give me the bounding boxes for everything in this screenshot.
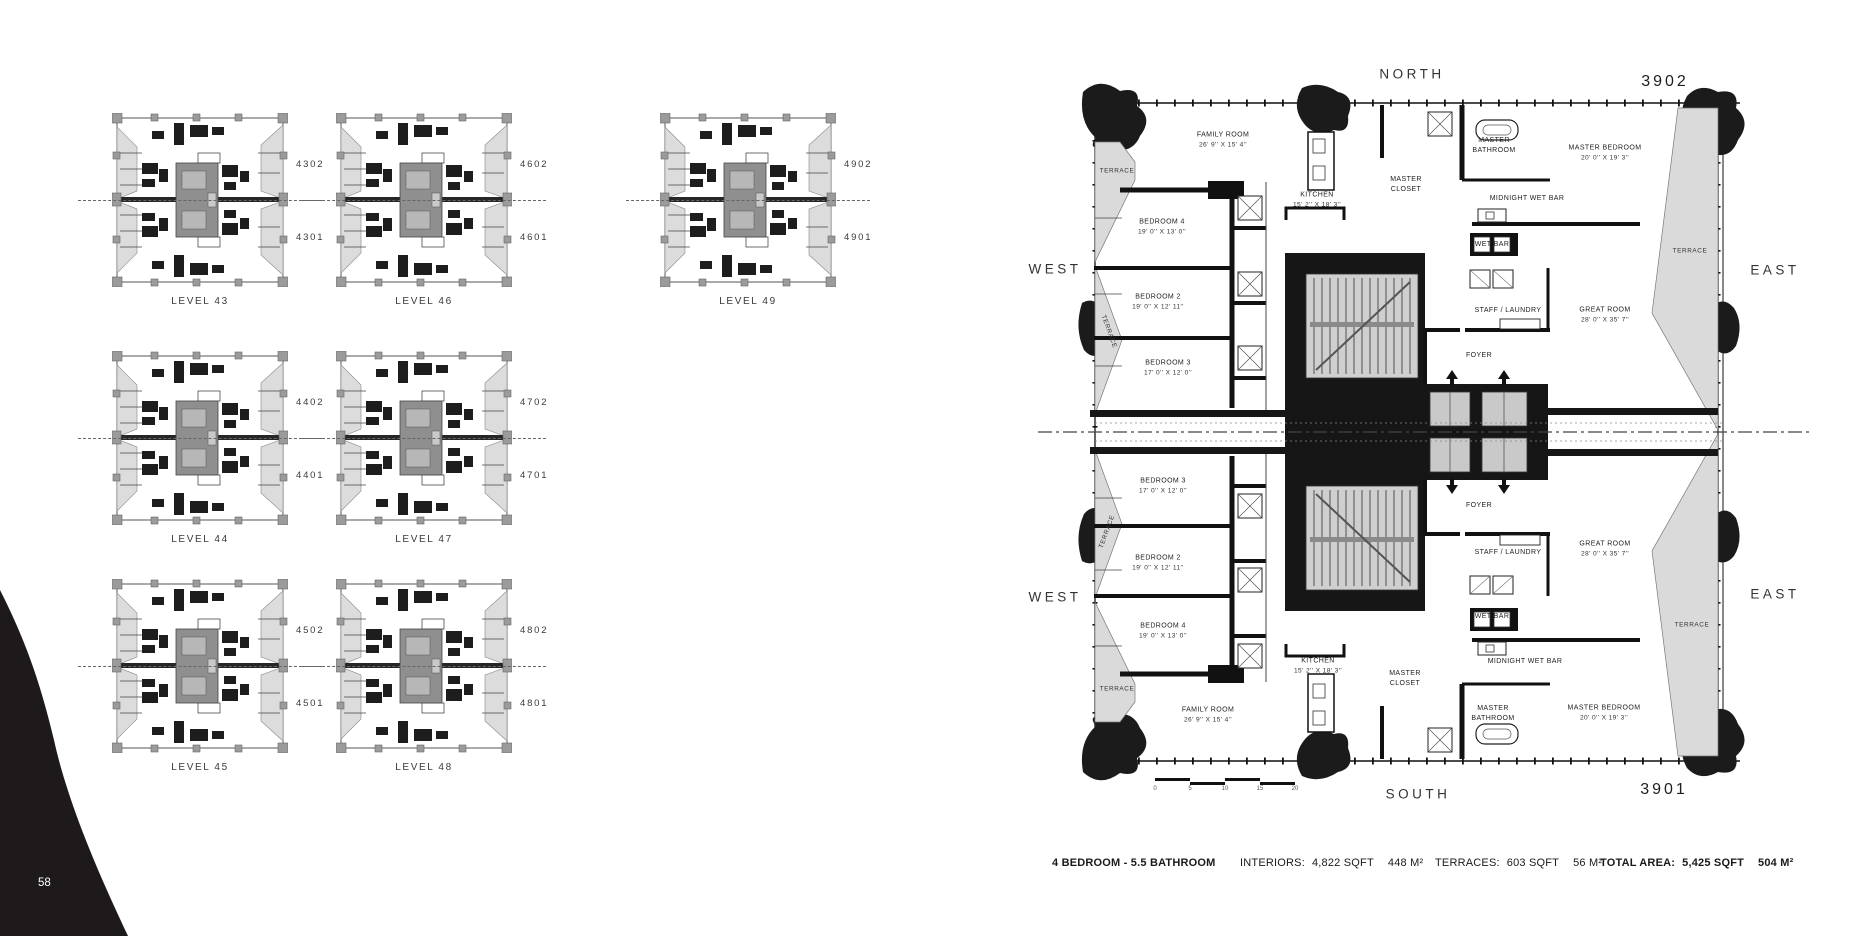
room-name: BEDROOM 3 [1144,358,1192,368]
unit-number-north: 3902 [1641,73,1689,91]
room-label-bedroom-4: BEDROOM 4 19' 0'' X 13' 0'' [1139,621,1187,640]
room-label-great-room: GREAT ROOM 28' 0'' X 35' 7'' [1579,539,1630,558]
room-name: GREAT ROOM [1579,305,1630,315]
match-line [302,666,546,667]
interiors-sqft: 4,822 SQFT [1312,857,1374,869]
unit-number: 4701 [520,470,548,481]
unit-number: 4501 [296,698,324,709]
scale-tick: 20 [1292,786,1299,792]
room-label-midnight-wet-bar: MIDNIGHT WET BAR [1488,657,1563,667]
room-dims: 19' 0'' X 13' 0'' [1139,631,1187,640]
compass-west-lower: WEST [1029,590,1082,605]
room-label-family-room: FAMILY ROOM 26' 9'' X 15' 4'' [1197,130,1249,149]
room-label-foyer: FOYER [1466,501,1492,511]
interiors-label: INTERIORS: [1240,857,1305,869]
room-dims: 20' 0'' X 19' 3'' [1569,153,1642,162]
room-label-master-bedroom: MASTER BEDROOM 20' 0'' X 19' 3'' [1568,703,1641,722]
terrace-label-east-upper: TERRACE [1673,248,1708,257]
room-label-wet-bar: WET BAR [1475,240,1510,250]
room-label-foyer: FOYER [1466,351,1492,361]
scale-tick: 5 [1188,786,1191,792]
room-label-kitchen: KITCHEN 15' 2'' X 18' 3'' [1294,656,1342,675]
compass-west-upper: WEST [1029,262,1082,277]
terraces-sqft: 603 SQFT [1507,857,1559,869]
level-label: LEVEL 43 [112,296,288,307]
corner-swoosh-graphic [0,560,140,936]
room-label-staff-laundry: STAFF / LAUNDRY [1475,306,1542,316]
room-label-wet-bar: WET BAR [1475,612,1510,622]
room-label-bedroom-2: BEDROOM 2 19' 0'' X 12' 11'' [1132,553,1184,572]
unit-number: 4602 [520,159,548,170]
room-name: BEDROOM 2 [1132,292,1184,302]
room-label-master-closet: MASTER CLOSET [1378,175,1434,195]
room-dims: 28' 0'' X 35' 7'' [1579,549,1630,558]
page-number: 58 [38,877,51,889]
room-dims: 19' 0'' X 12' 11'' [1132,302,1184,311]
room-name: BEDROOM 4 [1139,621,1187,631]
terraces-spec: TERRACES:603 SQFT56 M² [1435,857,1602,869]
scale-tick: 15 [1257,786,1264,792]
compass-east-lower: EAST [1750,587,1799,602]
compass-east-upper: EAST [1750,263,1799,278]
room-name: FAMILY ROOM [1197,130,1249,140]
room-dims: 28' 0'' X 35' 7'' [1579,315,1630,324]
unit-number: 4702 [520,397,548,408]
room-label-kitchen: KITCHEN 15' 2'' X 18' 3'' [1293,190,1341,209]
room-dims: 17' 0'' X 12' 0'' [1139,486,1187,495]
unit-number-south: 3901 [1640,781,1688,799]
room-name: FAMILY ROOM [1182,705,1234,715]
room-name: MASTER BEDROOM [1569,143,1642,153]
level-label: LEVEL 48 [336,762,512,773]
terrace-label-west-lower: TERRACE [1100,686,1135,695]
room-name: BEDROOM 3 [1139,476,1187,486]
room-name: GREAT ROOM [1579,539,1630,549]
interiors-m2: 448 M² [1388,857,1423,869]
room-dims: 26' 9'' X 15' 4'' [1182,715,1234,724]
room-label-great-room: GREAT ROOM 28' 0'' X 35' 7'' [1579,305,1630,324]
scale-tick: 0 [1153,786,1156,792]
match-line [302,200,546,201]
room-label-family-room: FAMILY ROOM 26' 9'' X 15' 4'' [1182,705,1234,724]
terrace-label-east-lower: TERRACE [1675,622,1710,631]
compass-south: SOUTH [1386,787,1451,802]
room-dims: 19' 0'' X 13' 0'' [1138,227,1186,236]
total-sqft: 5,425 SQFT [1682,857,1744,869]
room-dims: 17' 0'' X 12' 0'' [1144,368,1192,377]
unit-number: 4502 [296,625,324,636]
level-label: LEVEL 47 [336,534,512,545]
room-label-master-closet: MASTER CLOSET [1377,669,1433,689]
room-label-bedroom-3: BEDROOM 3 17' 0'' X 12' 0'' [1139,476,1187,495]
room-label-staff-laundry: STAFF / LAUNDRY [1475,548,1542,558]
unit-number: 4402 [296,397,324,408]
terrace-label-west-upper: TERRACE [1100,168,1135,177]
room-label-master-bathroom: MASTER BATHROOM [1465,704,1521,724]
room-label-bedroom-2: BEDROOM 2 19' 0'' X 12' 11'' [1132,292,1184,311]
unit-number: 4802 [520,625,548,636]
room-name: MASTER BEDROOM [1568,703,1641,713]
terraces-label: TERRACES: [1435,857,1500,869]
unit-number: 4902 [844,159,872,170]
match-line [302,438,546,439]
room-label-master-bathroom: MASTER BATHROOM [1466,136,1522,156]
room-label-bedroom-3: BEDROOM 3 17' 0'' X 12' 0'' [1144,358,1192,377]
total-m2: 504 M² [1758,857,1793,869]
unit-number: 4601 [520,232,548,243]
unit-number: 4901 [844,232,872,243]
match-line [78,200,322,201]
compass-north: NORTH [1379,67,1444,82]
main-floorplan: NORTH SOUTH WEST WEST EAST EAST 3902 390… [1080,78,1770,788]
match-line [78,438,322,439]
room-dims: 19' 0'' X 12' 11'' [1132,563,1184,572]
unit-number: 4801 [520,698,548,709]
unit-number: 4302 [296,159,324,170]
unit-number: 4301 [296,232,324,243]
level-label: LEVEL 49 [660,296,836,307]
room-label-midnight-wet-bar: MIDNIGHT WET BAR [1490,194,1565,204]
total-label: TOTAL AREA: [1600,857,1675,869]
match-line [626,200,870,201]
total-area-spec: TOTAL AREA:5,425 SQFT504 M² [1600,857,1793,869]
room-dims: 26' 9'' X 15' 4'' [1197,140,1249,149]
room-dims: 15' 2'' X 18' 3'' [1293,200,1341,209]
interiors-spec: INTERIORS:4,822 SQFT448 M² [1240,857,1423,869]
level-label: LEVEL 46 [336,296,512,307]
level-label: LEVEL 44 [112,534,288,545]
room-name: KITCHEN [1293,190,1341,200]
room-name: BEDROOM 2 [1132,553,1184,563]
room-dims: 15' 2'' X 18' 3'' [1294,666,1342,675]
scale-tick: 10 [1222,786,1229,792]
room-dims: 20' 0'' X 19' 3'' [1568,713,1641,722]
room-label-bedroom-4: BEDROOM 4 19' 0'' X 13' 0'' [1138,217,1186,236]
room-label-master-bedroom: MASTER BEDROOM 20' 0'' X 19' 3'' [1569,143,1642,162]
unit-number: 4401 [296,470,324,481]
terraces-m2: 56 M² [1573,857,1602,869]
unit-configuration: 4 BEDROOM - 5.5 BATHROOM [1052,857,1216,869]
room-name: BEDROOM 4 [1138,217,1186,227]
room-name: KITCHEN [1294,656,1342,666]
